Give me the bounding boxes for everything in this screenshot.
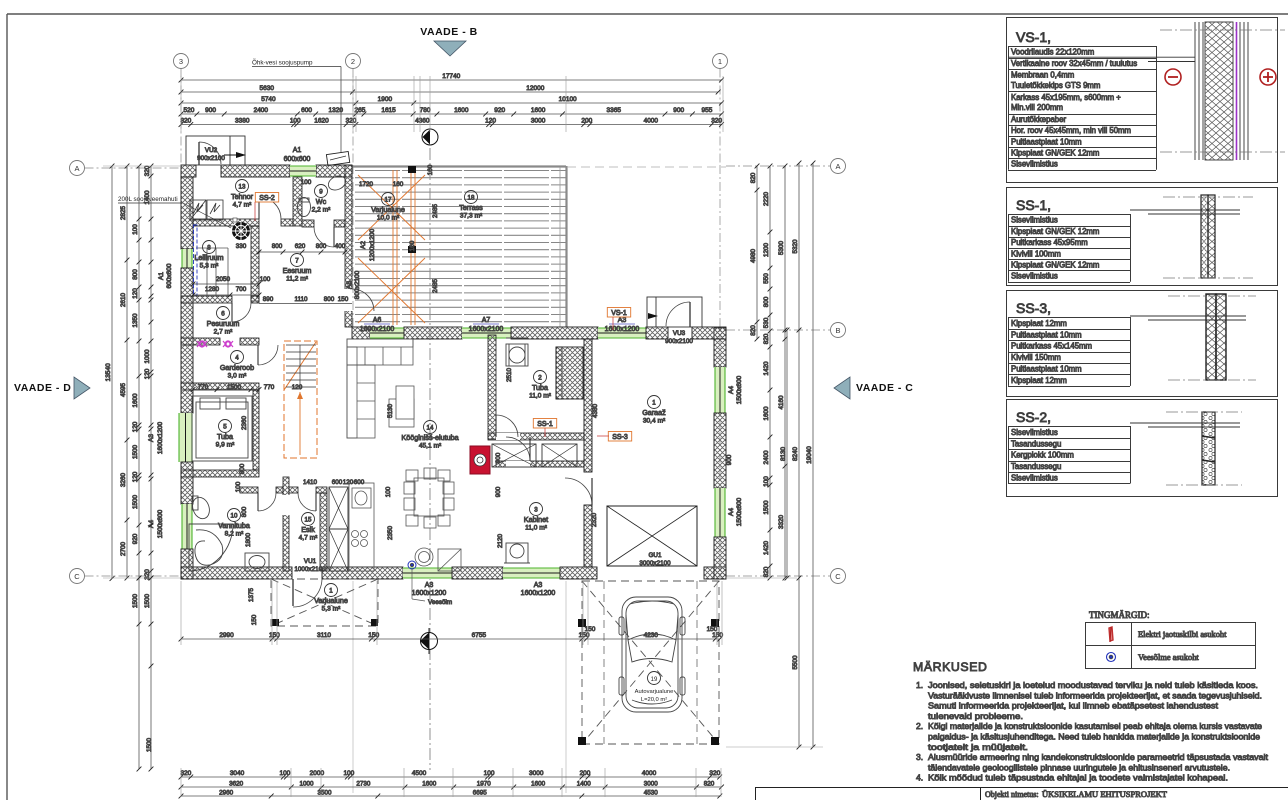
svg-text:Tuba: Tuba (532, 383, 548, 392)
svg-text:18: 18 (468, 195, 475, 202)
svg-text:1600x2100: 1600x2100 (469, 326, 504, 333)
svg-text:550: 550 (763, 273, 770, 284)
svg-text:100: 100 (132, 224, 139, 235)
svg-text:Veesõlme asukoht: Veesõlme asukoht (1138, 653, 1199, 662)
svg-text:A8: A8 (346, 281, 353, 289)
svg-text:Kivivill 100mm: Kivivill 100mm (1011, 249, 1061, 258)
svg-text:120: 120 (343, 479, 354, 486)
svg-text:37,3 m²: 37,3 m² (460, 213, 483, 220)
svg-text:100: 100 (385, 486, 392, 497)
svg-text:Wc: Wc (316, 197, 327, 206)
svg-text:14: 14 (427, 425, 434, 432)
svg-text:900: 900 (205, 107, 216, 114)
svg-text:Kõigi materjalide ja konstrukt: Kõigi materjalide ja konstruktsioonide k… (928, 721, 1262, 731)
svg-text:1410: 1410 (303, 479, 318, 486)
svg-text:1500: 1500 (144, 594, 151, 609)
svg-text:3: 3 (534, 507, 538, 514)
svg-text:1600: 1600 (454, 107, 469, 114)
svg-text:10100: 10100 (559, 96, 577, 103)
svg-text:100: 100 (235, 481, 242, 492)
svg-text:SS-2: SS-2 (259, 195, 275, 202)
svg-text:800: 800 (763, 296, 770, 307)
svg-text:8: 8 (207, 245, 211, 252)
svg-text:1: 1 (718, 57, 722, 66)
svg-text:1000: 1000 (300, 781, 315, 788)
svg-text:Õhk-vesi soojuspump: Õhk-vesi soojuspump (252, 58, 313, 67)
svg-text:3040: 3040 (230, 770, 245, 777)
svg-text:160: 160 (409, 240, 416, 251)
svg-text:820: 820 (763, 566, 770, 577)
svg-text:C: C (835, 572, 841, 581)
svg-text:1: 1 (329, 588, 333, 595)
svg-text:L=20,0 m²: L=20,0 m² (641, 697, 667, 703)
svg-text:SS-3,: SS-3, (1016, 300, 1051, 316)
svg-text:MÄRKUSED: MÄRKUSED (913, 660, 988, 674)
svg-text:Puitlaastplaat 10mm: Puitlaastplaat 10mm (1011, 365, 1082, 374)
svg-text:A2: A2 (360, 241, 367, 249)
svg-text:VAADE - C: VAADE - C (856, 382, 913, 394)
svg-text:2,2 m²: 2,2 m² (312, 207, 331, 214)
svg-text:100: 100 (343, 770, 354, 777)
svg-text:SS-3: SS-3 (612, 434, 628, 441)
svg-text:Tuba: Tuba (217, 432, 233, 441)
svg-text:1600x1200: 1600x1200 (605, 326, 640, 333)
svg-text:2400: 2400 (254, 107, 269, 114)
svg-text:A6: A6 (373, 317, 382, 324)
svg-text:Puitkarkass 45x145mm: Puitkarkass 45x145mm (1011, 342, 1092, 351)
svg-text:A: A (835, 162, 840, 171)
svg-text:3320: 3320 (778, 515, 785, 530)
svg-text:A3: A3 (425, 582, 434, 589)
svg-text:4000: 4000 (642, 770, 657, 777)
svg-text:45,1 m²: 45,1 m² (419, 443, 442, 450)
svg-text:1500: 1500 (132, 445, 139, 460)
svg-text:4,7 m²: 4,7 m² (233, 202, 252, 209)
svg-text:600: 600 (354, 479, 365, 486)
svg-text:VAADE - B: VAADE - B (420, 26, 477, 38)
svg-text:Garderoob: Garderoob (220, 363, 254, 372)
svg-text:SS-2,: SS-2, (1016, 409, 1051, 425)
svg-text:3000x2100: 3000x2100 (639, 560, 671, 567)
svg-text:2485: 2485 (432, 279, 439, 294)
svg-text:A4: A4 (728, 508, 735, 516)
svg-text:900: 900 (673, 107, 684, 114)
svg-text:A7: A7 (482, 317, 491, 324)
svg-text:1500: 1500 (146, 738, 153, 753)
svg-text:Siseviimistlus: Siseviimistlus (1011, 474, 1058, 483)
svg-text:SS-1,: SS-1, (1016, 197, 1051, 213)
svg-text:Aurutõkkepaber: Aurutõkkepaber (1011, 115, 1066, 124)
svg-text:600x600: 600x600 (284, 156, 311, 163)
svg-text:Kõik mõõdud tuleb täpsustada e: Kõik mõõdud tuleb täpsustada ehitajal ja… (928, 773, 1228, 783)
svg-text:A3: A3 (618, 317, 627, 324)
svg-text:900x2100: 900x2100 (665, 338, 693, 345)
svg-text:620: 620 (295, 243, 306, 250)
svg-text:5500: 5500 (792, 655, 799, 670)
svg-text:320: 320 (180, 770, 191, 777)
svg-text:1500: 1500 (132, 495, 139, 510)
svg-text:1500: 1500 (132, 594, 139, 609)
svg-text:1000: 1000 (144, 349, 151, 364)
svg-text:3000: 3000 (529, 770, 544, 777)
svg-text:1500: 1500 (763, 500, 770, 515)
svg-text:120: 120 (292, 384, 303, 391)
svg-text:820: 820 (750, 172, 757, 183)
svg-text:200: 200 (580, 770, 591, 777)
svg-text:Siseviimistlus: Siseviimistlus (1011, 272, 1058, 281)
svg-text:3260: 3260 (120, 473, 127, 488)
svg-text:1720: 1720 (359, 181, 374, 188)
svg-text:2700: 2700 (120, 542, 127, 557)
svg-text:2050: 2050 (216, 276, 231, 283)
svg-text:Objekti nimetus:: Objekti nimetus: (985, 790, 1039, 799)
svg-text:520: 520 (183, 107, 194, 114)
svg-text:8,2 m²: 8,2 m² (225, 531, 244, 538)
svg-text:2730: 2730 (356, 781, 371, 788)
svg-text:1375: 1375 (248, 588, 255, 603)
svg-text:1.: 1. (916, 680, 923, 690)
svg-text:820: 820 (750, 325, 757, 336)
svg-text:320: 320 (711, 118, 722, 125)
svg-text:Siseviimistlus: Siseviimistlus (1011, 216, 1058, 225)
svg-text:2: 2 (538, 375, 542, 382)
svg-text:2,7 m²: 2,7 m² (214, 329, 233, 336)
svg-text:A1: A1 (293, 147, 302, 154)
svg-text:100: 100 (279, 770, 290, 777)
svg-text:900x2100: 900x2100 (197, 155, 225, 162)
svg-text:920: 920 (132, 533, 139, 544)
svg-text:320: 320 (144, 165, 151, 176)
svg-text:100: 100 (301, 179, 312, 186)
svg-text:TINGMÄRGID:: TINGMÄRGID: (1089, 610, 1150, 620)
svg-text:2485: 2485 (432, 204, 439, 219)
svg-text:150: 150 (269, 632, 280, 639)
svg-text:150: 150 (585, 626, 596, 633)
svg-text:Kergplokk 100mm: Kergplokk 100mm (1011, 451, 1074, 460)
svg-text:5320: 5320 (792, 239, 799, 254)
svg-text:5630: 5630 (260, 85, 275, 92)
svg-text:Puitkarkass 45x95mm: Puitkarkass 45x95mm (1011, 238, 1088, 247)
svg-text:7: 7 (295, 258, 299, 265)
svg-text:4530: 4530 (644, 790, 659, 797)
svg-text:770: 770 (198, 384, 209, 391)
svg-text:A1: A1 (158, 272, 165, 280)
svg-text:11,2 m²: 11,2 m² (286, 276, 309, 283)
svg-text:900: 900 (726, 454, 733, 465)
svg-text:4,7 m²: 4,7 m² (299, 535, 318, 542)
svg-text:1620: 1620 (314, 118, 329, 125)
svg-text:120: 120 (144, 368, 151, 379)
svg-text:Voodrilaudis 22x120mm: Voodrilaudis 22x120mm (1011, 48, 1094, 57)
svg-text:Veesõlm: Veesõlm (428, 599, 452, 606)
svg-text:1200: 1200 (763, 243, 770, 258)
svg-text:9: 9 (319, 189, 323, 196)
svg-text:2350: 2350 (387, 526, 394, 541)
svg-text:4500: 4500 (412, 770, 427, 777)
svg-text:530: 530 (763, 317, 770, 328)
svg-text:100: 100 (763, 476, 770, 487)
svg-text:3380: 3380 (235, 118, 250, 125)
svg-text:Kipsplaat GN/GEK 12mm: Kipsplaat GN/GEK 12mm (1011, 149, 1099, 158)
svg-text:Puitlaastplaat 10mm: Puitlaastplaat 10mm (1011, 137, 1082, 146)
svg-text:A3: A3 (534, 582, 543, 589)
svg-text:Leiliruum: Leiliruum (194, 253, 223, 262)
svg-text:Varjualune: Varjualune (371, 205, 405, 214)
svg-text:3,0 m²: 3,0 m² (228, 373, 247, 380)
svg-text:200: 200 (581, 118, 592, 125)
svg-text:A: A (74, 164, 79, 173)
svg-text:160: 160 (393, 181, 404, 188)
svg-text:Elektri jaotuskilbi asukoht: Elektri jaotuskilbi asukoht (1138, 630, 1227, 639)
svg-text:5130: 5130 (387, 404, 394, 419)
svg-text:1500x600: 1500x600 (736, 497, 743, 526)
svg-text:17: 17 (385, 197, 392, 204)
svg-text:1600x1200: 1600x1200 (157, 422, 164, 455)
svg-text:12000: 12000 (526, 85, 544, 92)
svg-text:1200x1200: 1200x1200 (369, 229, 376, 262)
svg-text:Hor. roov 45x45mm, min vill 50: Hor. roov 45x45mm, min vill 50mm (1011, 126, 1131, 135)
svg-text:A4: A4 (728, 386, 735, 394)
svg-text:4360: 4360 (415, 118, 430, 125)
svg-text:1600: 1600 (422, 781, 437, 788)
svg-text:VAADE - D: VAADE - D (14, 382, 71, 394)
svg-text:1000x2100: 1000x2100 (294, 566, 326, 573)
svg-text:3: 3 (179, 57, 183, 66)
svg-text:6695: 6695 (473, 790, 488, 797)
svg-text:10: 10 (231, 513, 238, 520)
svg-text:A3: A3 (148, 434, 155, 442)
svg-text:VU1: VU1 (304, 558, 317, 565)
svg-text:800: 800 (272, 243, 283, 250)
svg-text:1600: 1600 (531, 781, 546, 788)
svg-text:Membraan 0,4mm: Membraan 0,4mm (1011, 71, 1074, 80)
svg-text:1110: 1110 (294, 296, 308, 303)
svg-text:5300: 5300 (778, 241, 785, 256)
svg-text:2960: 2960 (219, 790, 234, 797)
svg-text:Tasandussegu: Tasandussegu (1011, 462, 1061, 471)
svg-text:1900: 1900 (378, 96, 393, 103)
svg-text:B: B (835, 326, 840, 335)
svg-text:1615: 1615 (381, 107, 396, 114)
svg-text:3365: 3365 (606, 107, 621, 114)
svg-text:Siseviimistlus: Siseviimistlus (1011, 428, 1058, 437)
svg-text:tootjatelt ja müüjatelt.: tootjatelt ja müüjatelt. (928, 742, 1028, 752)
svg-text:VU2: VU2 (205, 147, 218, 154)
svg-text:8240: 8240 (792, 447, 799, 462)
svg-text:320: 320 (346, 118, 357, 125)
svg-text:150: 150 (338, 296, 349, 303)
svg-text:1500x600: 1500x600 (157, 509, 164, 538)
svg-text:6755: 6755 (472, 632, 487, 639)
svg-text:11,0 m²: 11,0 m² (529, 393, 552, 400)
svg-text:780: 780 (420, 107, 431, 114)
svg-text:Siseviimistlus: Siseviimistlus (1011, 160, 1058, 169)
svg-text:1600x1200: 1600x1200 (521, 590, 556, 597)
svg-text:1400: 1400 (144, 190, 151, 205)
svg-text:1420: 1420 (763, 361, 770, 376)
svg-text:2990: 2990 (219, 632, 234, 639)
svg-text:Esik: Esik (301, 525, 315, 534)
svg-text:320: 320 (180, 118, 191, 125)
svg-text:1500x600: 1500x600 (736, 375, 743, 404)
svg-text:Puitlaastplaat 10mm: Puitlaastplaat 10mm (1011, 330, 1082, 339)
svg-text:1600: 1600 (531, 107, 546, 114)
svg-text:4.: 4. (916, 773, 923, 783)
svg-text:100: 100 (290, 118, 301, 125)
svg-text:330: 330 (236, 243, 247, 250)
svg-text:1320: 1320 (329, 107, 344, 114)
svg-text:820: 820 (763, 333, 770, 344)
svg-text:5,3 m²: 5,3 m² (322, 606, 341, 613)
svg-text:Eesruum: Eesruum (283, 266, 312, 275)
svg-text:1600x1200: 1600x1200 (412, 590, 447, 597)
svg-text:600: 600 (301, 107, 312, 114)
svg-text:1800: 1800 (245, 533, 252, 548)
svg-text:Alusmüüride armeering ning kan: Alusmüüride armeering ning kandekonstruk… (928, 752, 1269, 762)
svg-text:Kipsplaat 12mm: Kipsplaat 12mm (1011, 319, 1067, 328)
svg-text:4: 4 (235, 355, 239, 362)
svg-text:1600: 1600 (763, 406, 770, 421)
svg-text:320: 320 (709, 770, 720, 777)
svg-text:820: 820 (704, 781, 715, 788)
svg-text:1: 1 (652, 400, 656, 407)
svg-text:2400: 2400 (763, 450, 770, 465)
svg-text:2: 2 (351, 57, 355, 66)
svg-text:Garaaž: Garaaž (642, 408, 666, 417)
svg-text:4000: 4000 (644, 118, 659, 125)
svg-text:800: 800 (324, 296, 335, 303)
svg-text:1400: 1400 (577, 781, 592, 788)
svg-text:3500: 3500 (317, 790, 332, 797)
svg-text:5,3 m²: 5,3 m² (200, 263, 219, 270)
svg-text:Tuuletõkkekips GTS 9mm: Tuuletõkkekips GTS 9mm (1011, 81, 1100, 90)
svg-text:VU3: VU3 (673, 330, 686, 337)
svg-text:600x600: 600x600 (166, 263, 173, 288)
svg-text:Tehnor: Tehnor (231, 192, 254, 201)
svg-text:120: 120 (132, 471, 139, 482)
svg-text:Pesuruum: Pesuruum (207, 319, 240, 328)
svg-text:1420: 1420 (763, 541, 770, 556)
svg-text:Vannituba: Vannituba (218, 521, 250, 530)
svg-text:2610: 2610 (120, 293, 127, 308)
svg-text:täiendavatele geoloogilistele: täiendavatele geoloogilistele pinnase uu… (928, 762, 1230, 772)
svg-text:Samuti informeerida projekteer: Samuti informeerida projekteerijat, kui … (928, 701, 1219, 711)
svg-text:2825: 2825 (120, 206, 127, 221)
svg-text:800: 800 (241, 506, 248, 517)
svg-text:30,4 m²: 30,4 m² (643, 418, 666, 425)
svg-text:3000: 3000 (531, 118, 546, 125)
svg-text:Vertikaalne roov 32x45mm / tuu: Vertikaalne roov 32x45mm / tuulutus (1011, 59, 1137, 68)
svg-text:400: 400 (335, 243, 346, 250)
svg-text:6: 6 (221, 311, 225, 318)
svg-text:3.: 3. (916, 752, 923, 762)
svg-text:2000: 2000 (310, 770, 325, 777)
svg-text:920: 920 (494, 107, 505, 114)
svg-text:900: 900 (495, 452, 502, 463)
svg-text:3110: 3110 (317, 632, 331, 639)
svg-text:paigaldus- ja käsitusjuhendite: paigaldus- ja käsitusjuhenditega. Need t… (928, 732, 1260, 742)
svg-text:Terrass: Terrass (459, 203, 483, 212)
svg-text:11,0 m²: 11,0 m² (525, 525, 548, 532)
svg-text:2.: 2. (916, 721, 923, 731)
svg-text:Min.vill 200mm: Min.vill 200mm (1011, 103, 1063, 112)
svg-text:Kipsplaat GN/GEK 12mm: Kipsplaat GN/GEK 12mm (1011, 261, 1099, 270)
svg-text:150: 150 (368, 632, 379, 639)
svg-text:150: 150 (251, 614, 258, 625)
svg-text:Kööginišš-elutuba: Kööginišš-elutuba (401, 433, 458, 442)
svg-text:700: 700 (236, 286, 247, 293)
svg-text:4160: 4160 (778, 395, 785, 410)
svg-text:1600x2100: 1600x2100 (360, 326, 395, 333)
svg-text:Karkass 45x195mm, s600mm +: Karkass 45x195mm, s600mm + (1011, 93, 1121, 102)
svg-text:Varjualune: Varjualune (314, 596, 348, 605)
svg-text:19: 19 (651, 677, 658, 683)
svg-text:4595: 4595 (120, 383, 127, 398)
svg-text:8130: 8130 (780, 447, 787, 462)
svg-text:900: 900 (495, 486, 502, 497)
svg-text:890: 890 (263, 296, 274, 303)
svg-text:17740: 17740 (442, 73, 460, 80)
svg-text:2320: 2320 (591, 513, 598, 528)
svg-text:150: 150 (712, 632, 723, 639)
svg-text:4380: 4380 (592, 404, 599, 419)
svg-text:SS-1: SS-1 (537, 421, 553, 428)
svg-text:GU1: GU1 (649, 552, 662, 559)
svg-text:Kipsplaat 12mm: Kipsplaat 12mm (1011, 376, 1067, 385)
svg-text:100: 100 (484, 770, 495, 777)
svg-text:13: 13 (239, 184, 246, 191)
svg-text:VS-1,: VS-1, (1016, 29, 1051, 45)
svg-text:955: 955 (702, 107, 713, 114)
svg-text:800x2100: 800x2100 (354, 270, 361, 299)
svg-text:Kabinet: Kabinet (524, 515, 548, 524)
svg-text:15: 15 (305, 517, 312, 524)
svg-text:2120: 2120 (497, 534, 504, 549)
svg-text:4980: 4980 (750, 249, 757, 264)
svg-text:3620: 3620 (229, 781, 244, 788)
svg-text:1280: 1280 (205, 286, 220, 293)
svg-text:3000: 3000 (644, 781, 659, 788)
svg-text:Tasandussegu: Tasandussegu (1011, 439, 1061, 448)
svg-text:C: C (74, 572, 80, 581)
svg-text:770: 770 (264, 384, 275, 391)
svg-text:ÜKSIKELAMU EHITUSPROJEKT: ÜKSIKELAMU EHITUSPROJEKT (1042, 789, 1168, 799)
svg-text:150: 150 (707, 626, 718, 633)
svg-text:120: 120 (132, 421, 139, 432)
svg-text:13540: 13540 (105, 363, 112, 381)
svg-text:tulenevaid probleeme.: tulenevaid probleeme. (928, 711, 1023, 721)
svg-text:1970: 1970 (477, 781, 492, 788)
svg-text:VS-1: VS-1 (611, 310, 627, 317)
svg-text:120: 120 (132, 288, 139, 299)
svg-text:19040: 19040 (806, 446, 813, 464)
svg-text:Kivivill 150mm: Kivivill 150mm (1011, 353, 1061, 362)
svg-text:1500: 1500 (227, 384, 242, 391)
svg-text:160: 160 (427, 164, 434, 175)
svg-text:5740: 5740 (261, 96, 276, 103)
svg-text:2510: 2510 (506, 368, 513, 383)
svg-text:800: 800 (239, 463, 246, 474)
svg-text:Autovarjualune: Autovarjualune (635, 689, 674, 695)
svg-text:10,0 m²: 10,0 m² (377, 215, 400, 222)
svg-text:Joonised, seletuskiri ja loete: Joonised, seletuskiri ja loetelud moodus… (928, 680, 1258, 690)
svg-text:800: 800 (316, 243, 327, 250)
svg-text:1600: 1600 (132, 393, 139, 408)
svg-text:4230: 4230 (644, 632, 659, 639)
svg-text:120: 120 (485, 118, 496, 125)
svg-text:5: 5 (223, 424, 227, 431)
svg-text:1350: 1350 (132, 313, 139, 328)
